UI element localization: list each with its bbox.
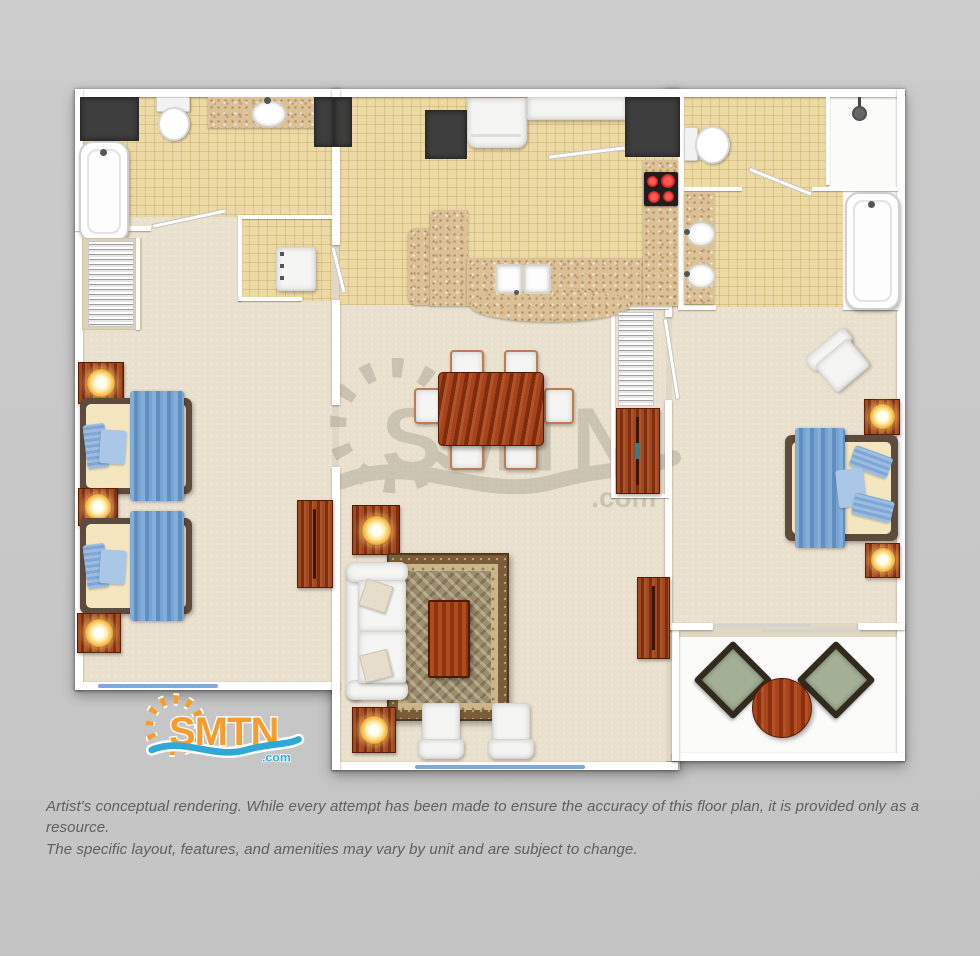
stove — [644, 172, 678, 206]
sink-faucet-icon — [684, 271, 690, 277]
armchair-back — [418, 739, 464, 759]
wall-closet-left-side — [136, 238, 140, 330]
logo-tld-text: .com — [262, 750, 291, 764]
table-lamp-icon — [361, 515, 392, 546]
armchair-seat — [422, 703, 460, 743]
wall-closet-left — [611, 305, 615, 498]
table-lamp-icon — [870, 547, 896, 573]
nightstand — [864, 399, 900, 435]
dresser-handle-icon — [652, 586, 655, 650]
table-lamp-icon — [359, 715, 389, 745]
queen-bed — [785, 435, 898, 541]
pillow — [99, 549, 127, 585]
armchair — [488, 703, 532, 757]
sink-faucet-icon — [684, 229, 690, 235]
refrigerator-handle-icon — [471, 134, 521, 137]
sink-left — [251, 100, 287, 128]
wall-balcony-left — [672, 630, 679, 761]
wall-bottom-balcony — [672, 753, 905, 761]
wall-laundry-left — [238, 215, 242, 301]
hall-cabinet-a — [314, 97, 334, 147]
wall-outer-top — [75, 89, 905, 97]
wall-shower-bottom — [812, 187, 898, 191]
floor-plan-page: { "brand": {"name": "SMTN", "tld": ".com… — [0, 0, 980, 956]
wall-laundry-top — [238, 215, 332, 219]
wall-shower-left — [826, 97, 830, 185]
disclaimer-line-1: Artist's conceptual rendering. While eve… — [46, 796, 951, 839]
table-lamp-icon — [84, 618, 114, 648]
coffee-table — [428, 600, 470, 678]
sliding-door-panel — [762, 629, 860, 632]
bathtub-right — [845, 192, 900, 310]
blanket — [130, 511, 184, 621]
table-lamp-icon — [86, 368, 116, 398]
wall-center-c — [332, 467, 340, 770]
side-table — [352, 707, 396, 753]
table-lamp-icon — [84, 493, 112, 521]
disclaimer: Artist's conceptual rendering. While eve… — [46, 796, 951, 860]
burner-icon — [663, 191, 674, 202]
kitchen-cabinet-dark — [425, 110, 467, 159]
shower-head-icon — [852, 106, 867, 121]
window-living-room — [415, 765, 585, 769]
wall-laundry-bottom — [238, 297, 302, 301]
wall-bath-right-stub-a — [678, 305, 716, 310]
sliding-door-panel — [713, 624, 811, 627]
hall-cabinet-b — [334, 97, 352, 147]
twin-bed-1 — [80, 398, 192, 494]
dresser-bedroom-right — [637, 577, 670, 659]
wall-center-b — [332, 300, 340, 405]
sofa — [346, 562, 410, 698]
armchair — [418, 703, 462, 757]
dresser-handle-icon — [313, 509, 316, 579]
wall-toilet-nook — [684, 187, 742, 191]
bathtub-left — [79, 141, 129, 242]
burner-icon — [647, 176, 658, 187]
kitchen-sink — [523, 264, 551, 294]
island-counter-arm — [430, 210, 468, 306]
sofa-arm — [346, 680, 408, 700]
burner-icon — [661, 174, 675, 188]
side-table — [352, 505, 400, 555]
nightstand — [865, 543, 900, 578]
island-counter-west — [408, 228, 432, 305]
washer-controls-icon — [280, 252, 284, 284]
wall-closet-bottom — [611, 494, 669, 498]
dresser-bedroom-left — [297, 500, 333, 588]
toilet-right — [695, 126, 730, 164]
pillow — [99, 429, 127, 465]
console-accent-icon — [635, 443, 640, 459]
sofa-arm — [346, 562, 408, 582]
nightstand — [77, 613, 121, 653]
armchair-seat — [492, 703, 530, 743]
wire-shelf-icon — [618, 312, 654, 406]
armchair-back — [488, 739, 534, 759]
toilet-left — [158, 107, 190, 141]
media-console — [616, 408, 660, 494]
wall-bedroom-right-bottom-b — [858, 623, 905, 630]
wall-bedroom-right-bottom-a — [665, 623, 713, 630]
disclaimer-line-2: The specific layout, features, and ameni… — [46, 839, 951, 860]
pantry-cabinet — [625, 97, 680, 157]
wire-shelf-icon — [88, 241, 134, 327]
kitchen-faucet-icon — [514, 290, 519, 295]
dining-table — [438, 372, 544, 446]
table-lamp-icon — [869, 403, 896, 430]
dining-chair — [544, 388, 574, 424]
balcony-table — [752, 678, 812, 738]
sink-right-b — [686, 263, 716, 289]
burner-icon — [648, 191, 660, 203]
kitchen-counter-top — [527, 97, 627, 120]
smtn-logo: SMTN .com — [146, 688, 308, 768]
refrigerator — [467, 98, 527, 148]
sink-right-a — [686, 221, 716, 247]
island-counter-curve — [470, 288, 630, 322]
bathroom-left-cabinet — [80, 97, 139, 141]
kitchen-sink — [495, 264, 523, 294]
sink-left-faucet-icon — [264, 97, 271, 104]
blanket — [130, 391, 184, 501]
twin-bed-2 — [80, 518, 192, 614]
